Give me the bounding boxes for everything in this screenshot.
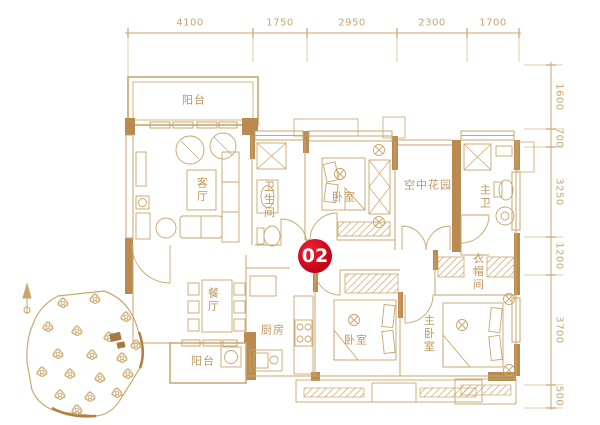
closet-icon [338,222,390,236]
room-label-cloakroom: 衣帽间 [471,253,484,292]
fridge-icon [250,276,276,296]
unit-number-badge: 02 [298,239,332,273]
basin-icon [496,207,514,225]
toilet-icon [499,180,513,200]
bed-icon [334,300,396,360]
wardrobe-icon [487,257,514,277]
counter-icon [294,296,313,374]
sofa-icon [222,152,239,242]
site-plan [27,291,143,416]
room-label-master-bedroom: 主卧室 [422,315,435,354]
bed-icon [443,303,503,367]
building-marker-icon [109,332,125,349]
tree-icons [37,294,141,415]
dim-right-6: 500 [554,386,565,407]
room-label-master-bath: 主卫 [478,184,491,210]
wardrobe-icon [345,274,398,293]
room-label-bedroom-top: 卧室 [332,192,356,205]
toilet-icon [264,226,280,246]
dim-top-1: 4100 [176,18,203,29]
north-arrow-icon [23,284,31,314]
dim-top-5: 1700 [479,18,506,29]
room-label-bedroom-bottom: 卧室 [344,335,368,348]
room-label-balcony-top: 阳台 [182,95,206,108]
room-label-sky-garden: 空中花园 [404,180,452,193]
room-label-living-room: 客厅 [195,177,208,203]
dim-right-2: 700 [554,128,565,149]
room-label-kitchen: 厨房 [261,325,285,338]
dim-top-4: 2300 [418,18,445,29]
dim-top-2: 1750 [266,18,293,29]
dim-right-4: 1200 [554,242,565,269]
dim-top-3: 2950 [338,18,365,29]
room-label-bathroom: 卫生间 [262,181,275,220]
room-label-dining-room: 餐厅 [206,287,219,313]
floorplan-canvas: 4100 1750 2950 2300 1700 1600 700 3250 1… [0,0,600,425]
room-label-balcony-bottom: 阳台 [191,356,215,369]
dim-right-3: 3250 [554,178,565,205]
floorplan-drawing [0,0,600,425]
wardrobe-icon [369,160,390,214]
dim-right-5: 3700 [554,316,565,343]
tv-cabinet-icon [136,152,146,186]
wardrobe-icon [438,257,464,277]
dim-right-1: 1600 [554,83,565,110]
